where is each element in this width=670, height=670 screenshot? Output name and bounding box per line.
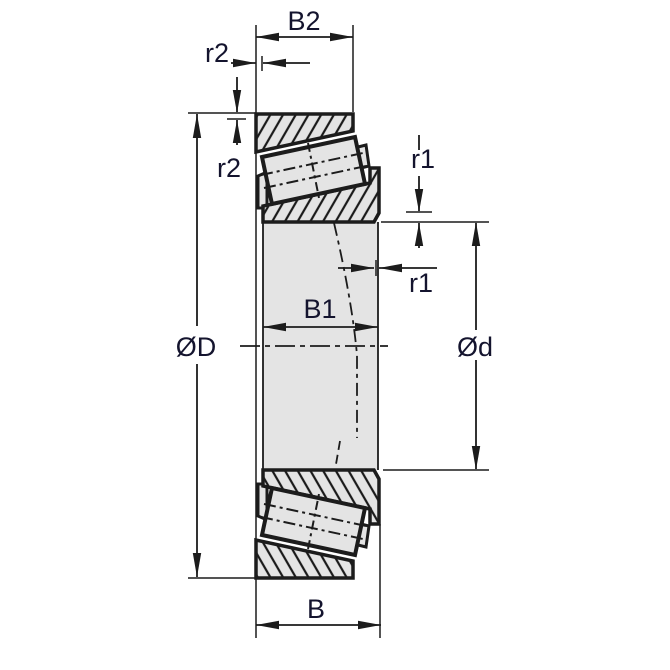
dimension-r2-vertical: r2 bbox=[217, 77, 246, 183]
label-outer-diameter: ØD bbox=[176, 332, 217, 362]
arrowhead-down bbox=[415, 189, 423, 212]
arrowhead-up bbox=[193, 114, 201, 138]
label-b2: B2 bbox=[287, 6, 320, 36]
bearing-upper-half bbox=[256, 114, 379, 222]
label-r1-vertical: r1 bbox=[411, 144, 435, 174]
drawing-canvas: B2 r2 r2 ØD r1 bbox=[0, 0, 670, 670]
label-r2-horizontal: r2 bbox=[205, 38, 229, 68]
dimension-r2-horizontal: r2 bbox=[205, 38, 310, 71]
arrowhead-down bbox=[472, 446, 480, 470]
arrowhead-right bbox=[233, 59, 256, 67]
arrowhead-up bbox=[472, 222, 480, 246]
bearing-lower-half bbox=[256, 470, 379, 578]
arrowhead-down bbox=[233, 90, 241, 113]
dimension-bore-diameter: Ød bbox=[381, 222, 493, 470]
label-bore-diameter: Ød bbox=[457, 332, 493, 362]
label-overall-width: B bbox=[307, 594, 325, 624]
label-r1-horizontal: r1 bbox=[409, 268, 433, 298]
arrowhead-right bbox=[330, 33, 353, 41]
label-r2-vertical: r2 bbox=[217, 153, 241, 183]
label-b1: B1 bbox=[303, 294, 336, 324]
arrowhead-down bbox=[193, 553, 201, 577]
arrowhead-left bbox=[256, 621, 279, 629]
arrowhead-left bbox=[256, 33, 279, 41]
arrowhead-right bbox=[358, 621, 381, 629]
dimension-r1-vertical: r1 bbox=[406, 135, 435, 248]
bearing-dimension-drawing: B2 r2 r2 ØD r1 bbox=[0, 0, 670, 670]
